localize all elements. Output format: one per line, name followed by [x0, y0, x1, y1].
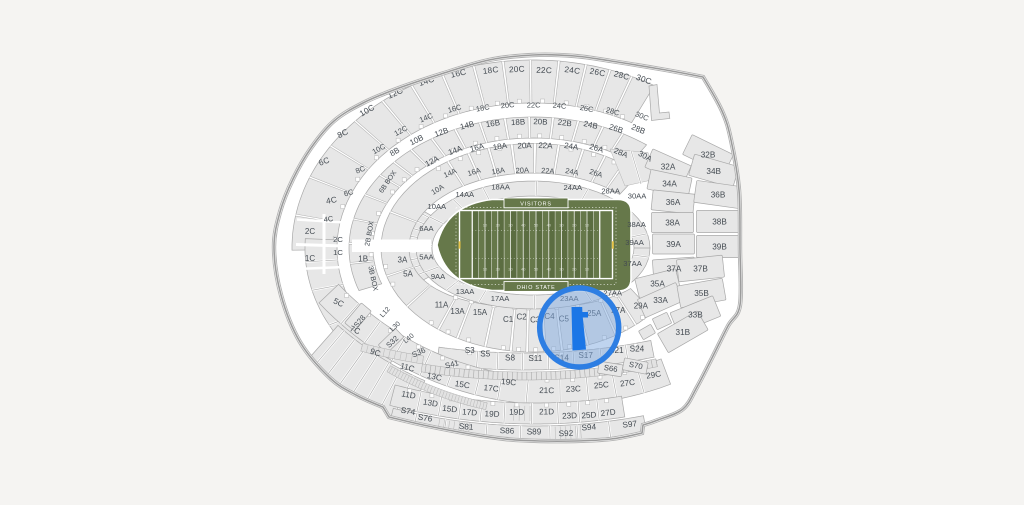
svg-text:C2: C2	[516, 313, 527, 322]
svg-text:13AA: 13AA	[456, 287, 476, 296]
svg-text:11A: 11A	[435, 301, 449, 310]
svg-text:23C: 23C	[566, 384, 581, 394]
svg-text:10: 10	[585, 267, 590, 272]
svg-text:20B: 20B	[533, 117, 548, 126]
svg-text:22A: 22A	[541, 166, 555, 176]
svg-text:34A: 34A	[662, 180, 677, 189]
svg-text:1C: 1C	[305, 254, 315, 263]
svg-text:32B: 32B	[701, 151, 716, 160]
svg-text:15A: 15A	[473, 308, 488, 317]
svg-text:18B: 18B	[511, 117, 526, 127]
svg-text:9AA: 9AA	[431, 272, 446, 281]
svg-text:S92: S92	[558, 429, 573, 439]
svg-text:21C: 21C	[539, 386, 554, 395]
svg-text:19C: 19C	[501, 377, 517, 387]
svg-text:40: 40	[521, 267, 526, 272]
svg-text:20C: 20C	[509, 64, 525, 75]
svg-text:30: 30	[559, 267, 564, 272]
svg-text:37A: 37A	[667, 265, 682, 274]
svg-text:30: 30	[508, 223, 513, 228]
svg-text:50: 50	[534, 223, 539, 228]
svg-text:33B: 33B	[688, 311, 703, 320]
svg-text:24AA: 24AA	[564, 183, 584, 192]
svg-text:50: 50	[534, 267, 539, 272]
svg-text:S86: S86	[500, 426, 515, 436]
svg-text:38AA: 38AA	[627, 220, 647, 229]
svg-text:1B: 1B	[358, 255, 368, 264]
svg-text:S11: S11	[528, 354, 542, 363]
svg-text:38A: 38A	[665, 219, 680, 228]
svg-text:30: 30	[508, 267, 513, 272]
svg-text:10: 10	[585, 223, 590, 228]
svg-text:22B: 22B	[557, 118, 572, 129]
svg-text:17D: 17D	[462, 407, 478, 417]
svg-text:39AA: 39AA	[625, 238, 645, 247]
svg-text:21D: 21D	[539, 407, 554, 416]
svg-text:OHIO STATE: OHIO STATE	[517, 285, 556, 291]
svg-text:31B: 31B	[676, 328, 691, 337]
svg-text:S94: S94	[581, 422, 597, 432]
svg-text:22C: 22C	[536, 65, 552, 76]
svg-text:30AA: 30AA	[628, 192, 648, 201]
svg-text:25C: 25C	[594, 380, 610, 390]
svg-text:36A: 36A	[666, 198, 681, 207]
svg-text:C1: C1	[503, 315, 514, 324]
svg-text:19D: 19D	[484, 409, 500, 419]
svg-text:34B: 34B	[706, 167, 721, 176]
svg-text:25D: 25D	[581, 410, 597, 420]
svg-text:20C: 20C	[500, 100, 515, 110]
svg-text:22A: 22A	[538, 141, 553, 151]
svg-text:32A: 32A	[661, 163, 676, 172]
svg-text:18C: 18C	[482, 64, 499, 76]
svg-text:5AA: 5AA	[419, 253, 434, 262]
svg-text:23D: 23D	[562, 411, 578, 421]
svg-text:17AA: 17AA	[491, 294, 511, 303]
svg-text:15D: 15D	[442, 404, 458, 415]
svg-text:10: 10	[483, 267, 488, 272]
svg-text:20A: 20A	[517, 141, 532, 151]
svg-text:1C: 1C	[333, 248, 343, 257]
svg-text:28AA: 28AA	[601, 187, 621, 196]
svg-text:S5: S5	[480, 350, 490, 359]
svg-text:10AA: 10AA	[428, 202, 448, 211]
svg-text:6AA: 6AA	[419, 224, 434, 233]
svg-text:37B: 37B	[693, 265, 708, 274]
svg-text:29A: 29A	[634, 301, 649, 310]
svg-text:20: 20	[496, 223, 501, 228]
svg-text:S3: S3	[465, 346, 475, 355]
svg-text:39A: 39A	[666, 240, 681, 249]
svg-text:20A: 20A	[515, 165, 529, 175]
svg-text:S24: S24	[630, 344, 645, 353]
svg-text:4C: 4C	[325, 194, 338, 206]
svg-text:35A: 35A	[650, 280, 665, 289]
svg-text:24C: 24C	[552, 101, 567, 111]
svg-text:10: 10	[483, 223, 488, 228]
svg-text:24C: 24C	[564, 64, 581, 76]
svg-text:40: 40	[547, 267, 552, 272]
svg-text:35B: 35B	[694, 289, 709, 298]
svg-text:27C: 27C	[619, 378, 635, 389]
svg-text:17C: 17C	[483, 383, 499, 394]
svg-text:2C: 2C	[333, 235, 343, 244]
svg-text:19D: 19D	[509, 408, 524, 417]
svg-text:18AA: 18AA	[491, 183, 511, 192]
svg-text:37AA: 37AA	[623, 259, 643, 268]
svg-text:40: 40	[521, 223, 526, 228]
svg-text:20: 20	[572, 223, 577, 228]
svg-text:VISITORS: VISITORS	[520, 201, 551, 207]
svg-text:22C: 22C	[527, 100, 541, 109]
svg-text:38B: 38B	[712, 218, 727, 227]
svg-text:20: 20	[572, 267, 577, 272]
svg-text:13A: 13A	[450, 307, 465, 316]
svg-text:4C: 4C	[323, 214, 334, 224]
svg-text:S97: S97	[622, 419, 638, 430]
svg-text:27D: 27D	[600, 408, 616, 419]
svg-text:S8: S8	[505, 353, 515, 362]
svg-text:S89: S89	[527, 428, 542, 437]
svg-text:20: 20	[496, 267, 501, 272]
svg-text:2C: 2C	[305, 227, 315, 236]
svg-text:5A: 5A	[403, 269, 413, 278]
svg-text:36B: 36B	[711, 191, 726, 200]
svg-text:3A: 3A	[398, 255, 408, 264]
svg-text:33A: 33A	[653, 296, 668, 305]
svg-text:14AA: 14AA	[456, 190, 476, 199]
svg-text:39B: 39B	[712, 243, 727, 252]
svg-text:40: 40	[547, 223, 552, 228]
svg-text:30: 30	[559, 223, 564, 228]
